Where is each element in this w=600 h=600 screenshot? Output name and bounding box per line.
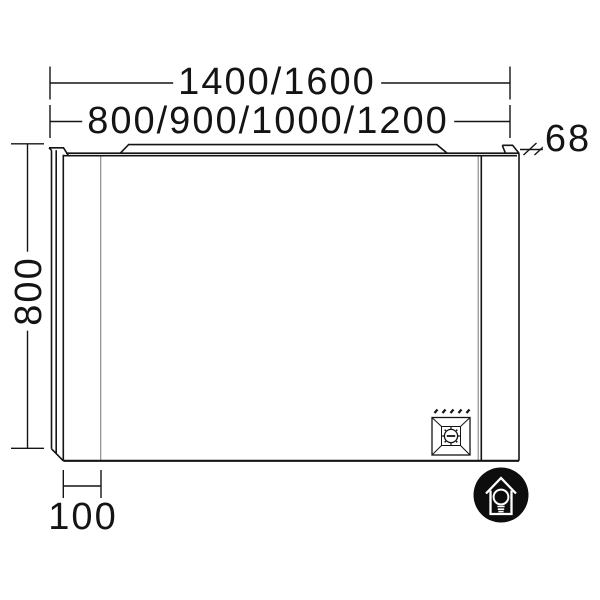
dimension-drawing: 1400/1600 800/900/1000/1200 68 800 100	[0, 0, 600, 600]
right-side-panel	[478, 145, 519, 461]
mirror-body	[49, 145, 519, 461]
house-lightbulb-icon	[474, 468, 529, 523]
dim-side-panel-width-label: 100	[43, 498, 122, 536]
led-light-strip	[120, 145, 447, 154]
left-side-panel	[49, 148, 101, 461]
dim-depth-label: 68	[543, 120, 593, 158]
dim-mirror-width-label: 800/900/1000/1200	[82, 102, 454, 140]
power-socket-icon	[432, 410, 470, 456]
dim-height-label: 800	[10, 251, 48, 330]
bulb-base	[497, 507, 504, 512]
dim-overall-width-label: 1400/1600	[173, 63, 381, 101]
vent-ticks	[435, 410, 470, 414]
